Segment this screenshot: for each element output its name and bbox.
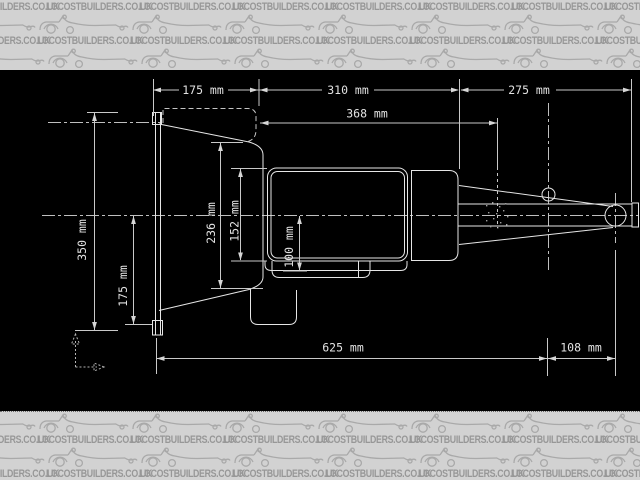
dim-label-100: 100 mm: [282, 226, 296, 268]
watermark-unit: LOCOSTBUILDERS.CO.UK: [595, 13, 640, 48]
locost-car-icon: [139, 47, 232, 69]
locost-car-icon: [409, 412, 502, 434]
watermark-text: LOCOSTBUILDERS.CO.UK: [46, 468, 152, 480]
locost-car-icon: [130, 13, 223, 35]
screenshot-stage: LOCOSTBUILDERS.CO.UKLOCOSTBUILDERS.CO.UK…: [0, 0, 640, 480]
locost-car-icon: [502, 13, 595, 35]
locost-car-icon: [0, 446, 46, 468]
locost-car-icon: [316, 13, 409, 35]
dim-label-175-left: 175 mm: [116, 265, 130, 307]
watermark-unit: LOCOSTBUILDERS.CO.UK: [139, 446, 232, 480]
watermark-text: LOCOSTBUILDERS.CO.UK: [325, 1, 431, 13]
watermark-unit: LOCOSTBUILDERS.CO.UK: [325, 446, 418, 480]
locost-car-icon: [130, 412, 223, 434]
watermark-unit: LOCOSTBUILDERS.CO.UK: [325, 47, 418, 70]
dimension-arrowheads: [92, 88, 631, 361]
origin-marker-icon: [72, 334, 105, 371]
watermark-unit: LOCOSTBUILDERS.CO.UK: [409, 412, 502, 447]
watermark-text: LOCOSTBUILDERS.CO.UK: [37, 35, 143, 47]
dimension-lines: [95, 90, 632, 359]
dim-label-368: 368 mm: [346, 107, 388, 121]
locost-car-icon: [418, 47, 511, 69]
watermark-text: LOCOSTBUILDERS.CO.UK: [502, 35, 608, 47]
watermark-unit: LOCOSTBUILDERS.CO.UK: [511, 0, 604, 14]
locost-car-icon: [325, 47, 418, 69]
locost-car-icon: [511, 446, 604, 468]
locost-car-icon: [139, 446, 232, 468]
watermark-unit: LOCOSTBUILDERS.CO.UK: [502, 412, 595, 447]
watermark-unit: LOCOSTBUILDERS.CO.UK: [604, 47, 640, 70]
dim-label-350: 350 mm: [75, 219, 89, 261]
watermark-band-top: LOCOSTBUILDERS.CO.UKLOCOSTBUILDERS.CO.UK…: [0, 0, 640, 70]
watermark-unit: LOCOSTBUILDERS.CO.UK: [316, 13, 409, 48]
dim-label-108: 108 mm: [560, 341, 602, 355]
watermark-unit: LOCOSTBUILDERS.CO.UK: [37, 412, 130, 447]
watermark-text: LOCOSTBUILDERS.CO.UK: [595, 35, 640, 47]
watermark-text: LOCOSTBUILDERS.CO.UK: [409, 434, 515, 446]
watermark-unit: LOCOSTBUILDERS.CO.UK: [325, 0, 418, 14]
watermark-unit: LOCOSTBUILDERS.CO.UK: [232, 446, 325, 480]
watermark-band-bottom: LOCOSTBUILDERS.CO.UKLOCOSTBUILDERS.CO.UK…: [0, 411, 640, 480]
watermark-unit: LOCOSTBUILDERS.CO.UK: [418, 446, 511, 480]
locost-car-icon: [325, 446, 418, 468]
watermark-text: LOCOSTBUILDERS.CO.UK: [325, 468, 431, 480]
clutch-pocket-outline: [251, 288, 297, 325]
watermark-unit: LOCOSTBUILDERS.CO.UK: [232, 47, 325, 70]
watermark-unit: LOCOSTBUILDERS.CO.UK: [0, 412, 37, 447]
watermark-unit: LOCOSTBUILDERS.CO.UK: [46, 0, 139, 14]
watermark-unit: LOCOSTBUILDERS.CO.UK: [604, 0, 640, 14]
locost-car-icon: [316, 412, 409, 434]
watermark-unit: LOCOSTBUILDERS.CO.UK: [0, 47, 46, 70]
watermark-unit: LOCOSTBUILDERS.CO.UK: [37, 13, 130, 48]
centerlines: [42, 103, 638, 270]
watermark-unit: LOCOSTBUILDERS.CO.UK: [595, 412, 640, 447]
locost-car-icon: [223, 13, 316, 35]
watermark-unit: LOCOSTBUILDERS.CO.UK: [511, 446, 604, 480]
watermark-unit: LOCOSTBUILDERS.CO.UK: [0, 0, 46, 14]
watermark-text: LOCOSTBUILDERS.CO.UK: [139, 468, 245, 480]
dim-label-152: 152 mm: [228, 200, 242, 242]
watermark-text: LOCOSTBUILDERS.CO.UK: [418, 1, 524, 13]
watermark-text: LOCOSTBUILDERS.CO.UK: [316, 434, 422, 446]
locost-car-icon: [37, 412, 130, 434]
watermark-unit: LOCOSTBUILDERS.CO.UK: [418, 0, 511, 14]
watermark-unit: LOCOSTBUILDERS.CO.UK: [223, 412, 316, 447]
locost-car-icon: [0, 13, 37, 35]
watermark-unit: LOCOSTBUILDERS.CO.UK: [139, 0, 232, 14]
extension-lines: [75, 79, 632, 376]
watermark-text: LOCOSTBUILDERS.CO.UK: [418, 468, 524, 480]
dim-label-236: 236 mm: [204, 202, 218, 244]
watermark-text: LOCOSTBUILDERS.CO.UK: [37, 434, 143, 446]
locost-car-icon: [0, 47, 46, 69]
watermark-text: LOCOSTBUILDERS.CO.UK: [595, 434, 640, 446]
watermark-unit: LOCOSTBUILDERS.CO.UK: [130, 412, 223, 447]
dim-label-625: 625 mm: [322, 341, 364, 355]
watermark-text: LOCOSTBUILDERS.CO.UK: [604, 1, 640, 13]
watermark-text: LOCOSTBUILDERS.CO.UK: [316, 35, 422, 47]
watermark-unit: LOCOSTBUILDERS.CO.UK: [409, 13, 502, 48]
watermark-text: LOCOSTBUILDERS.CO.UK: [223, 35, 329, 47]
watermark-unit: LOCOSTBUILDERS.CO.UK: [502, 13, 595, 48]
watermark-unit: LOCOSTBUILDERS.CO.UK: [46, 47, 139, 70]
watermark-text: LOCOSTBUILDERS.CO.UK: [130, 35, 236, 47]
watermark-text: LOCOSTBUILDERS.CO.UK: [46, 1, 152, 13]
watermark-unit: LOCOSTBUILDERS.CO.UK: [418, 47, 511, 70]
watermark-text: LOCOSTBUILDERS.CO.UK: [130, 434, 236, 446]
watermark-unit: LOCOSTBUILDERS.CO.UK: [232, 0, 325, 14]
watermark-unit: LOCOSTBUILDERS.CO.UK: [316, 412, 409, 447]
hidden-engine-plate-outline: [163, 109, 256, 142]
watermark-unit: LOCOSTBUILDERS.CO.UK: [46, 446, 139, 480]
watermark-unit: LOCOSTBUILDERS.CO.UK: [511, 47, 604, 70]
locost-car-icon: [46, 446, 139, 468]
locost-car-icon: [502, 412, 595, 434]
watermark-text: LOCOSTBUILDERS.CO.UK: [232, 1, 338, 13]
watermark-unit: LOCOSTBUILDERS.CO.UK: [130, 13, 223, 48]
locost-car-icon: [232, 47, 325, 69]
watermark-text: LOCOSTBUILDERS.CO.UK: [409, 35, 515, 47]
locost-car-icon: [604, 47, 640, 69]
dim-label-310: 310 mm: [327, 83, 369, 97]
dim-label-175-top: 175 mm: [182, 83, 224, 97]
locost-car-icon: [0, 412, 37, 434]
watermark-text: LOCOSTBUILDERS.CO.UK: [139, 1, 245, 13]
watermark-text: LOCOSTBUILDERS.CO.UK: [223, 434, 329, 446]
watermark-unit: LOCOSTBUILDERS.CO.UK: [223, 13, 316, 48]
gearbox-technical-drawing: 175 mm 310 mm 275 mm 368 mm 350 mm 175 m…: [0, 70, 640, 411]
watermark-text: LOCOSTBUILDERS.CO.UK: [511, 1, 617, 13]
dimension-labels: 175 mm 310 mm 275 mm 368 mm 350 mm 175 m…: [75, 83, 602, 355]
locost-car-icon: [595, 412, 640, 434]
locost-car-icon: [418, 446, 511, 468]
watermark-text: LOCOSTBUILDERS.CO.UK: [604, 468, 640, 480]
locost-car-icon: [595, 13, 640, 35]
locost-car-icon: [37, 13, 130, 35]
watermark-unit: LOCOSTBUILDERS.CO.UK: [0, 13, 37, 48]
dim-label-275: 275 mm: [508, 83, 550, 97]
locost-car-icon: [46, 47, 139, 69]
locost-car-icon: [232, 446, 325, 468]
watermark-text: LOCOSTBUILDERS.CO.UK: [502, 434, 608, 446]
watermark-unit: LOCOSTBUILDERS.CO.UK: [139, 47, 232, 70]
locost-car-icon: [409, 13, 502, 35]
locost-car-icon: [604, 446, 640, 468]
bellhousing-flange: [153, 113, 163, 336]
watermark-text: LOCOSTBUILDERS.CO.UK: [511, 468, 617, 480]
locost-car-icon: [511, 47, 604, 69]
watermark-unit: LOCOSTBUILDERS.CO.UK: [604, 446, 640, 480]
locost-car-icon: [223, 412, 316, 434]
watermark-unit: LOCOSTBUILDERS.CO.UK: [0, 446, 46, 480]
watermark-text: LOCOSTBUILDERS.CO.UK: [232, 468, 338, 480]
